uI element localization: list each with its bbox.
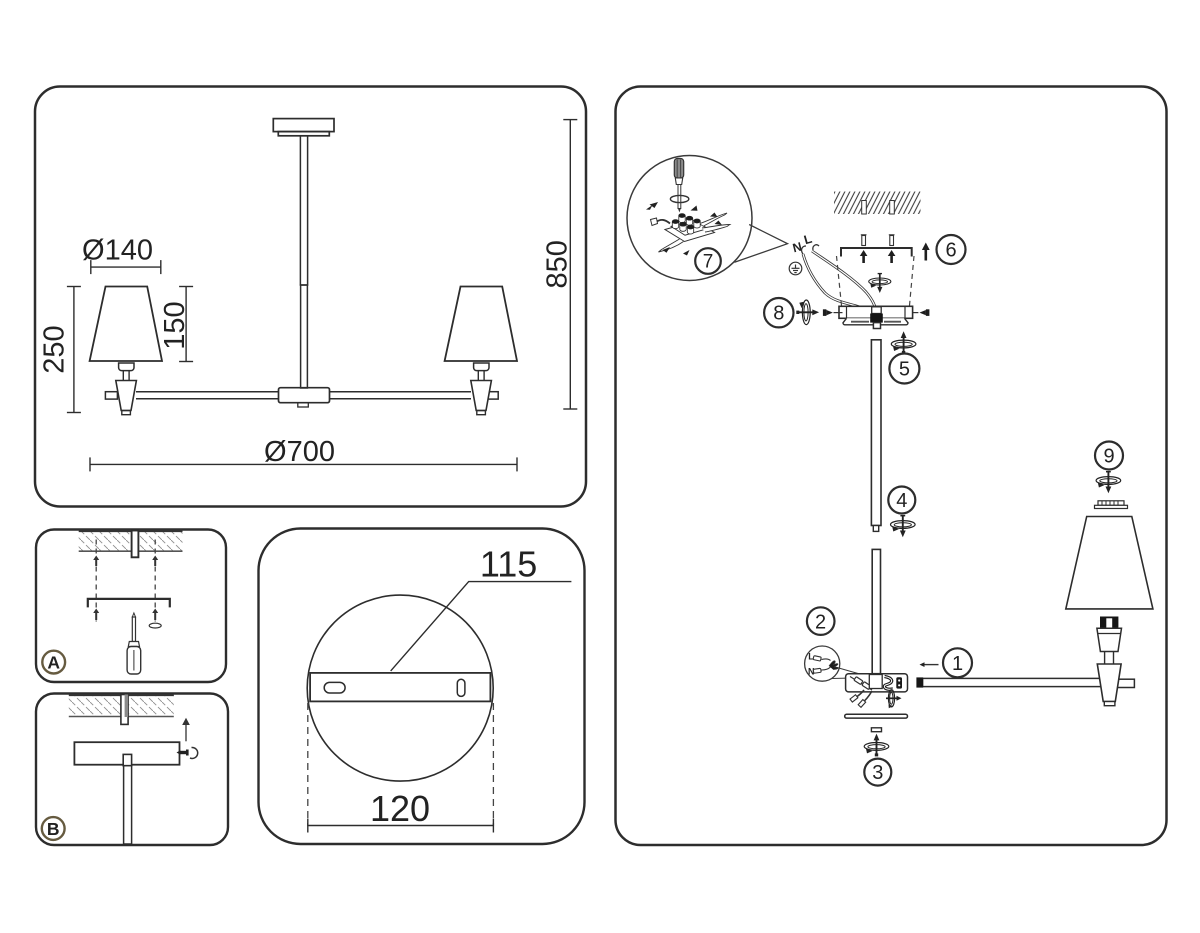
- svg-text:3: 3: [872, 762, 883, 784]
- svg-text:5: 5: [899, 359, 910, 381]
- svg-text:9: 9: [1103, 445, 1114, 467]
- svg-text:2: 2: [815, 611, 826, 633]
- svg-text:150: 150: [159, 301, 191, 349]
- svg-text:8: 8: [773, 303, 784, 325]
- svg-text:1: 1: [952, 653, 963, 675]
- svg-text:Ø140: Ø140: [82, 235, 153, 267]
- svg-text:Ø700: Ø700: [264, 436, 335, 468]
- svg-text:120: 120: [370, 788, 430, 829]
- svg-text:6: 6: [945, 240, 956, 262]
- svg-text:115: 115: [480, 544, 537, 585]
- svg-text:A: A: [47, 652, 60, 672]
- svg-text:850: 850: [542, 240, 574, 288]
- svg-text:4: 4: [896, 490, 907, 512]
- svg-text:B: B: [47, 819, 60, 839]
- svg-text:7: 7: [703, 252, 714, 273]
- svg-text:250: 250: [39, 325, 71, 373]
